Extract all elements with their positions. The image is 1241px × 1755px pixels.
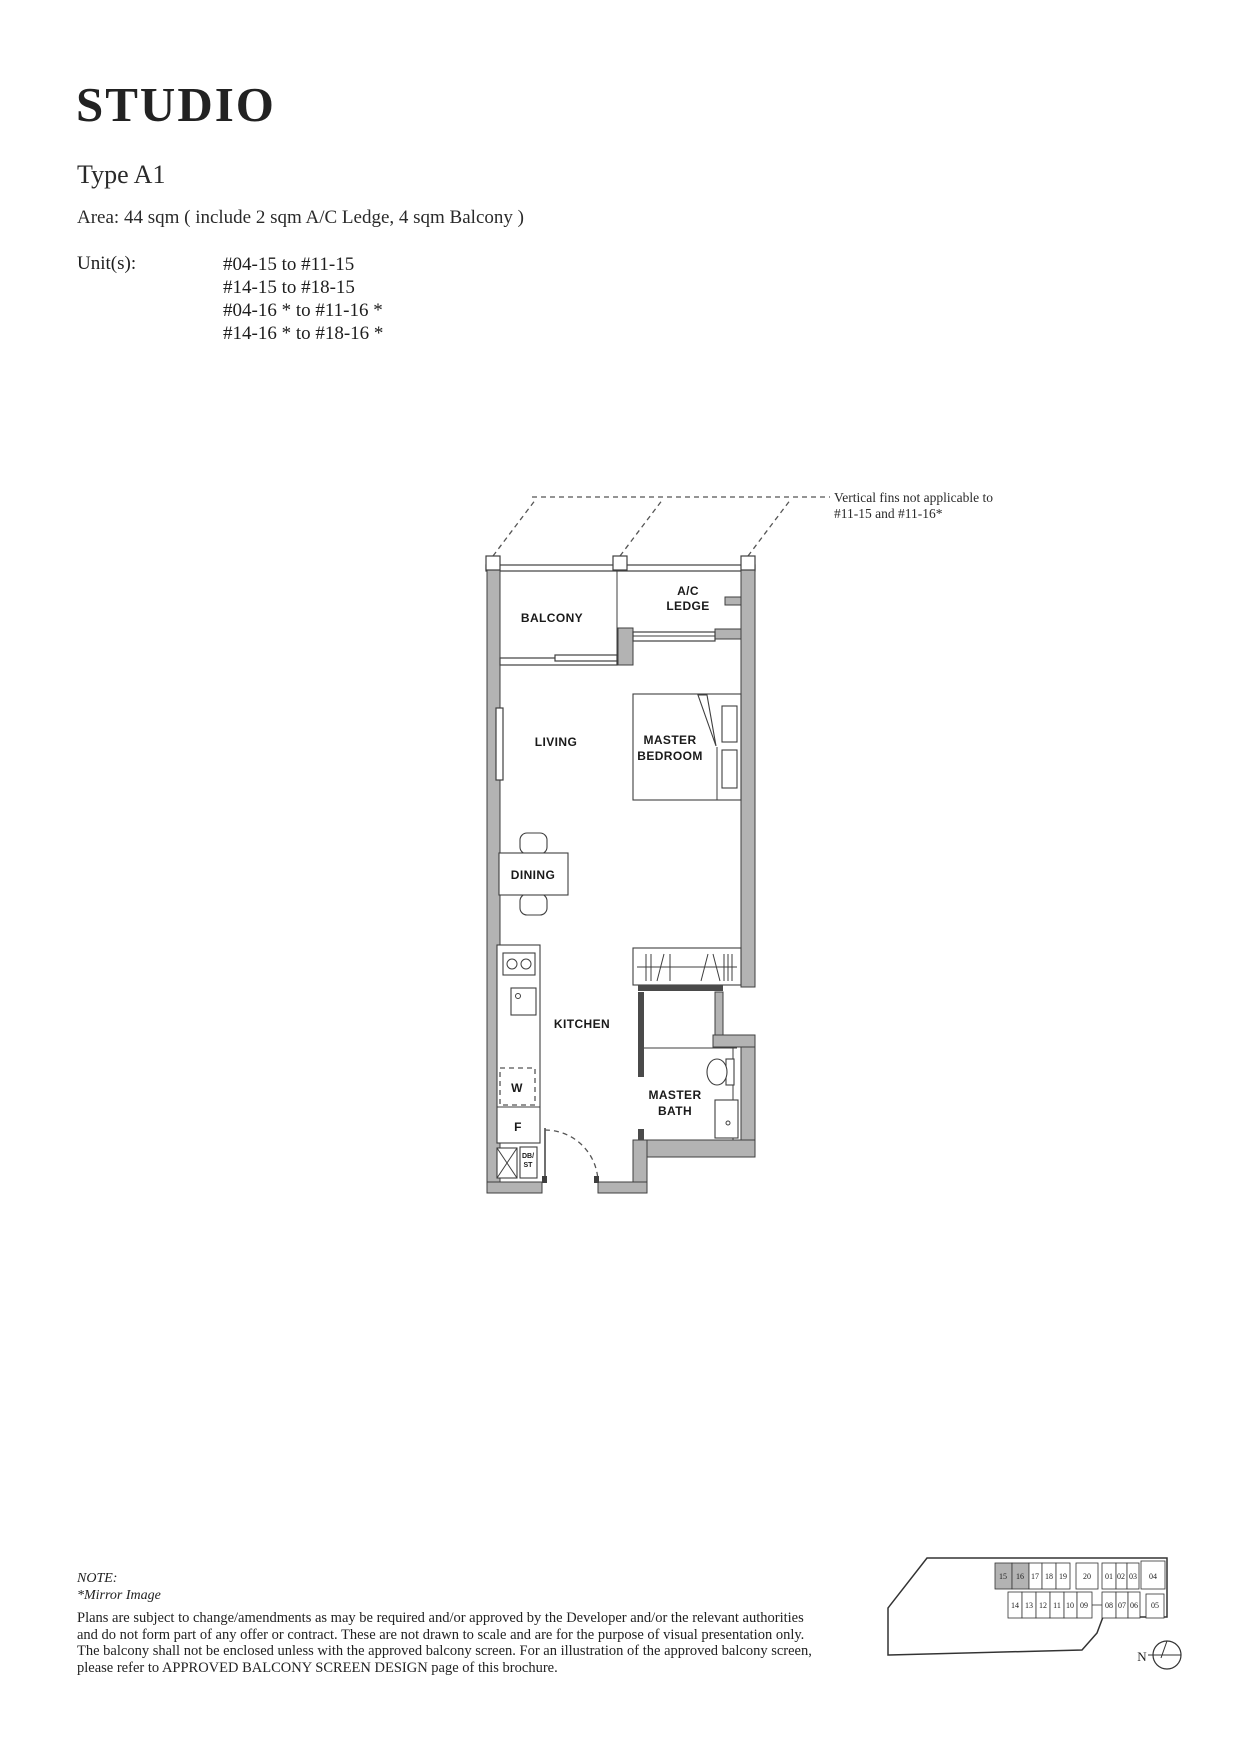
ac-ledge-label-1: A/C — [677, 584, 699, 598]
db-label-1: DB/ — [522, 1153, 534, 1160]
toilet — [707, 1059, 734, 1085]
svg-text:08: 08 — [1105, 1601, 1113, 1610]
disclaimer-line: and do not form part of any offer or con… — [77, 1627, 812, 1644]
cooktop — [503, 953, 535, 975]
master-bedroom-label-2: BEDROOM — [637, 749, 702, 763]
unit-range: #14-15 to #18-15 — [223, 276, 383, 299]
unit-range: #04-16 * to #11-16 * — [223, 299, 383, 322]
floorplan-drawing: Vertical fins not applicable to #11-15 a… — [430, 455, 1070, 1215]
living-window — [496, 708, 503, 780]
balcony-label: BALCONY — [521, 611, 583, 625]
svg-text:15: 15 — [999, 1572, 1007, 1581]
wardrobe — [633, 948, 741, 985]
unit-range: #14-16 * to #18-16 * — [223, 322, 383, 345]
svg-text:04: 04 — [1149, 1572, 1157, 1581]
fins-annotation-line1: Vertical fins not applicable to — [834, 490, 993, 505]
svg-text:14: 14 — [1011, 1601, 1019, 1610]
svg-text:13: 13 — [1025, 1601, 1033, 1610]
disclaimer-line: Plans are subject to change/amendments a… — [77, 1610, 812, 1627]
north-label: N — [1137, 1649, 1147, 1664]
svg-text:09: 09 — [1080, 1601, 1088, 1610]
svg-text:12: 12 — [1039, 1601, 1047, 1610]
svg-text:18: 18 — [1045, 1572, 1053, 1581]
fridge-label: F — [514, 1120, 522, 1134]
site-key-plan: 15 16 17 18 19 20 01 02 03 04 14 — [880, 1545, 1200, 1685]
washer-label: W — [511, 1081, 523, 1095]
dining-label: DINING — [511, 868, 555, 882]
page-title: STUDIO — [76, 76, 276, 133]
svg-text:02: 02 — [1117, 1572, 1125, 1581]
disclaimer-line: please refer to APPROVED BALCONY SCREEN … — [77, 1660, 812, 1677]
fins-annotation-line2: #11-15 and #11-16* — [834, 506, 943, 521]
basin — [715, 1100, 738, 1138]
svg-text:10: 10 — [1066, 1601, 1074, 1610]
db-label-2: ST — [524, 1162, 534, 1169]
ac-ledge-window — [633, 632, 715, 641]
svg-text:05: 05 — [1151, 1601, 1159, 1610]
disclaimer-paragraph: Plans are subject to change/amendments a… — [77, 1610, 812, 1676]
svg-text:19: 19 — [1059, 1572, 1067, 1581]
master-bath-label-1: MASTER — [648, 1088, 701, 1102]
svg-text:07: 07 — [1118, 1601, 1126, 1610]
kitchen-counter — [497, 945, 540, 1143]
svg-text:11: 11 — [1053, 1601, 1061, 1610]
svg-text:16: 16 — [1016, 1572, 1024, 1581]
kitchen-label: KITCHEN — [554, 1017, 610, 1031]
master-bedroom-label-1: MASTER — [643, 733, 696, 747]
entry-door — [542, 1128, 599, 1183]
svg-text:20: 20 — [1083, 1572, 1091, 1581]
disclaimer-line: The balcony shall not be enclosed unless… — [77, 1643, 812, 1660]
note-label: NOTE: — [77, 1571, 117, 1587]
unit-type-label: Type A1 — [77, 160, 165, 190]
units-label: Unit(s): — [77, 253, 136, 275]
master-bath-label-2: BATH — [658, 1104, 692, 1118]
sink — [511, 988, 536, 1015]
unit-range: #04-15 to #11-15 — [223, 253, 383, 276]
svg-text:06: 06 — [1130, 1601, 1138, 1610]
bed — [633, 694, 741, 800]
area-line: Area: 44 sqm ( include 2 sqm A/C Ledge, … — [77, 207, 524, 229]
north-compass-icon — [1148, 1641, 1181, 1669]
vertical-fins-dashed-lines — [493, 497, 830, 556]
brochure-page: STUDIO Type A1 Area: 44 sqm ( include 2 … — [0, 0, 1241, 1755]
svg-text:03: 03 — [1129, 1572, 1137, 1581]
mirror-image-note: *Mirror Image — [77, 1588, 161, 1604]
living-label: LIVING — [535, 735, 577, 749]
wardrobe-back-wall — [638, 985, 723, 991]
svg-text:17: 17 — [1031, 1572, 1039, 1581]
balcony-sliding-door — [500, 655, 617, 665]
svg-text:01: 01 — [1105, 1572, 1113, 1581]
ac-ledge-label-2: LEDGE — [666, 599, 709, 613]
units-list: #04-15 to #11-15 #14-15 to #18-15 #04-16… — [223, 253, 383, 345]
